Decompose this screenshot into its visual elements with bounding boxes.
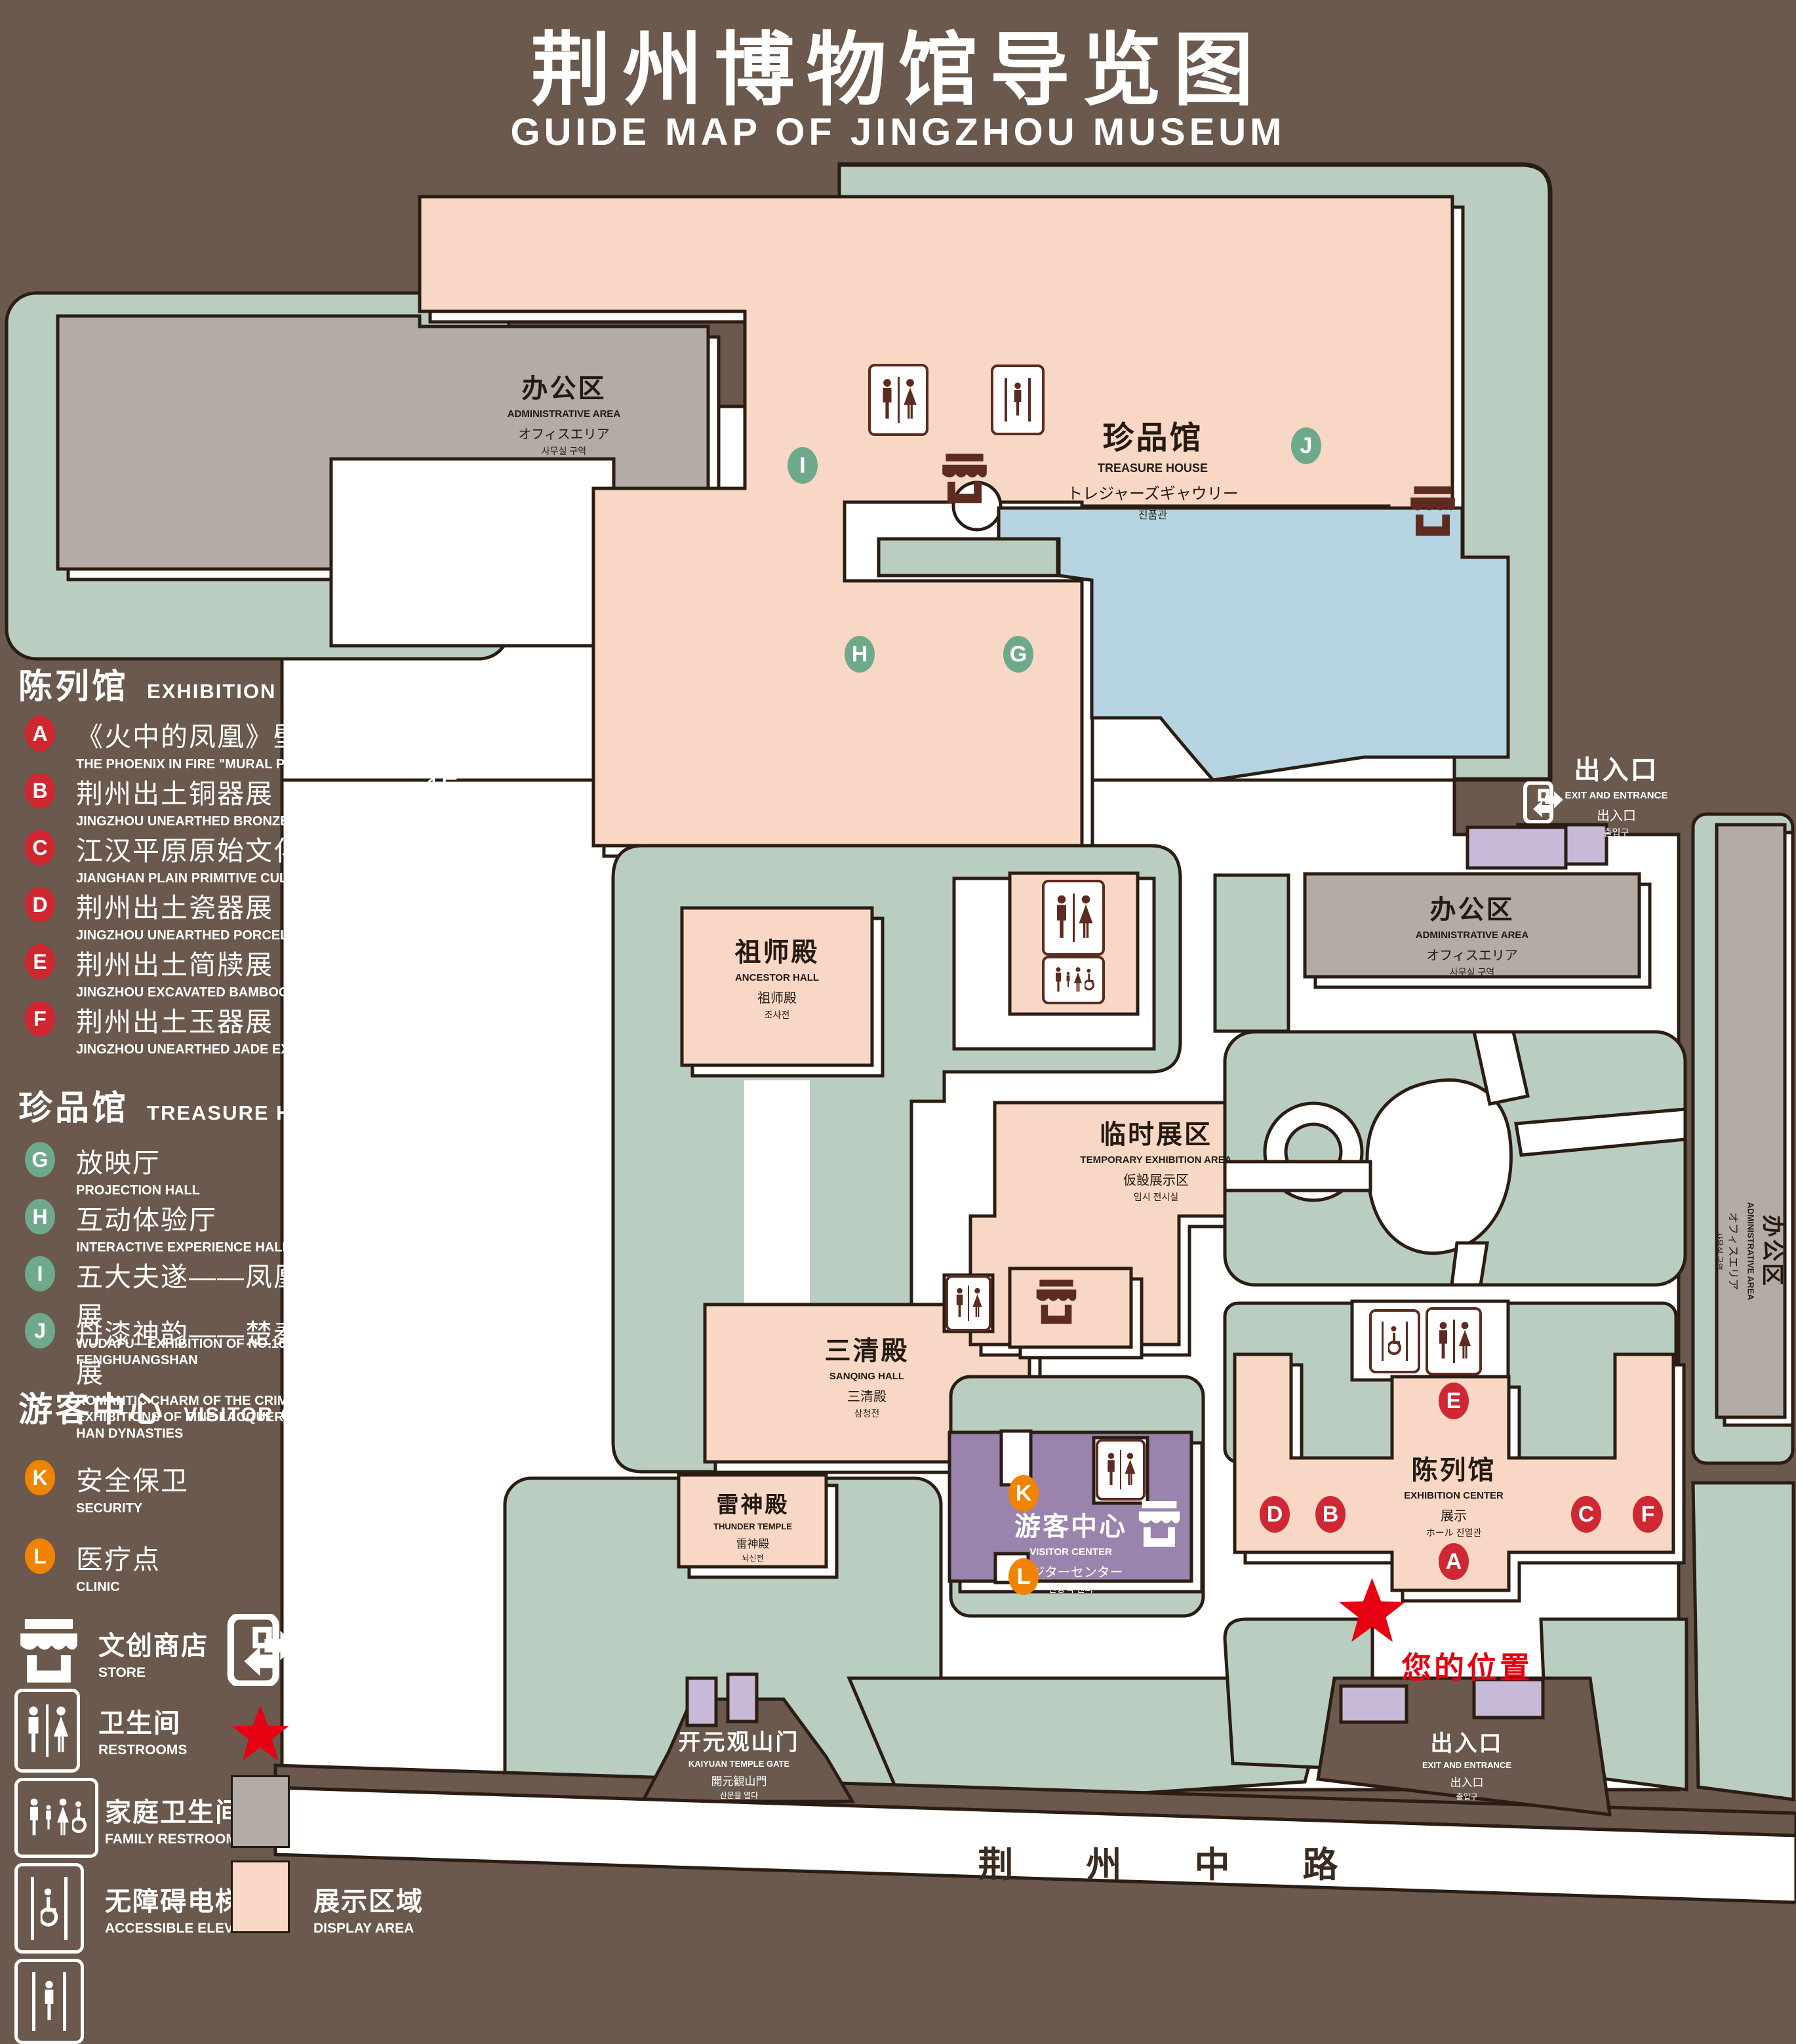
- label-exhibition-center: 陈列馆 EXHIBITION CENTER 展示 ホール 진열관: [1404, 1449, 1504, 1539]
- legend-office-area: 办公区域 OFFICE AREA: [313, 1791, 424, 1847]
- map-marker-H[interactable]: H: [845, 636, 875, 673]
- store-icon: [14, 1619, 83, 1685]
- garden-path-blob: [1367, 1080, 1511, 1253]
- label-kaiyuan-gate: 开元观山门 KAIYUAN TEMPLE GATE 開元観山門 산문을 열다: [679, 1724, 800, 1801]
- courtyard-admin: [331, 459, 614, 646]
- badge-H: H: [25, 1199, 55, 1234]
- restroom-icon: [868, 364, 928, 436]
- label-thunder-temple: 雷神殿 THUNDER TEMPLE 雷神殿 뇌신전: [713, 1487, 792, 1563]
- badge-E: E: [25, 944, 55, 979]
- map-marker-A[interactable]: A: [1439, 1543, 1469, 1580]
- badge-D: D: [25, 887, 55, 922]
- label-sanqing-hall: 三清殿 SANQING HALL 三清殿 삼청전: [825, 1329, 909, 1420]
- your-location-star-icon: [231, 1704, 290, 1763]
- accessible-elevator-icon: [1369, 1309, 1420, 1373]
- floor-C: 1F: [426, 829, 458, 860]
- legend-store: 文创商店 STORE: [98, 1624, 209, 1681]
- label-admin-far-right: 办公区 ADMINISTRATIVE AREA オフィスエリア 사무실 구역: [1714, 1202, 1791, 1301]
- legend-your-location: 您的位置 YOUR LOCATION: [313, 1702, 428, 1758]
- exit-entrance-icon: [1523, 781, 1565, 823]
- floor-A: 1F: [426, 715, 458, 746]
- legend-item-E[interactable]: E 荆州出土简牍展 JINGZHOU EXCAVATED BAMBOO SLIP…: [18, 943, 464, 1001]
- floor-I: 2F: [426, 1255, 458, 1286]
- legend-item-A[interactable]: A 《火中的凤凰》壁画 THE PHOENIX IN FIRE "MURAL P…: [18, 715, 464, 773]
- restroom-icon: [1426, 1307, 1482, 1375]
- label-exit-right: 出入口 EXIT AND ENTRANCE 出入口 출입구: [1565, 749, 1668, 839]
- legend-section-exhibition-center: 陈列馆EXHIBITION CENTER: [18, 659, 374, 708]
- exit-bottom-purple-1: [1341, 1686, 1407, 1722]
- lawn-channel: [879, 539, 1058, 576]
- legend-item-H[interactable]: H 互动体验厅 INTERACTIVE EXPERIENCE HALL 1F: [18, 1198, 464, 1256]
- floor-J: 1-2F: [401, 1312, 458, 1343]
- map-marker-E[interactable]: E: [1439, 1383, 1469, 1419]
- badge-A: A: [25, 716, 55, 751]
- lawn-bottom-far-right: [1693, 1483, 1793, 1799]
- legend-section-treasure-house: 珍品馆TREASURE HOUSE: [18, 1080, 355, 1130]
- garden-path-left: [1225, 1162, 1370, 1190]
- your-location-text: 您的位置: [1401, 1644, 1532, 1687]
- section-title-zh: 陈列馆: [18, 668, 129, 706]
- floor-H: 1F: [426, 1198, 458, 1229]
- elevator-icon: [14, 1959, 84, 2044]
- map-marker-F[interactable]: F: [1633, 1496, 1663, 1533]
- office-area-swatch: [231, 1775, 290, 1848]
- legend-section-visitor-center: 游客中心VISITOR CENTER: [18, 1382, 372, 1431]
- legend-family-restrooms: 家庭卫生间 FAMILY RESTROOMS: [105, 1791, 247, 1847]
- label-treasure-house: 珍品馆 TREASURE HOUSE トレジャーズギャウリー 진품관: [1067, 412, 1239, 522]
- legend-item-C[interactable]: C 江汉平原原始文化展 JIANGHAN PLAIN PRIMITIVE CUL…: [18, 829, 464, 887]
- label-admin-top-left: 办公区 ADMINISTRATIVE AREA オフィスエリア 사무실 구역: [508, 367, 621, 458]
- map-marker-G[interactable]: G: [1003, 636, 1033, 673]
- map-marker-I[interactable]: I: [788, 447, 818, 484]
- legend-exit: 出入口 EXIT AND ENTRANCE: [313, 1624, 458, 1681]
- page-title: 荆州博物馆导览图: [0, 5, 1796, 121]
- legend-item-F[interactable]: F 荆州出土玉器展 JINGZHOU UNEARTHED JADE EXHIBI…: [18, 1000, 464, 1058]
- map-marker-J[interactable]: J: [1291, 427, 1321, 464]
- exit-right-purple: [1467, 827, 1566, 868]
- store-icon: [939, 454, 990, 505]
- restrooms-icon: [14, 1689, 80, 1773]
- legend-item-L[interactable]: L 医疗点 CLINIC 1F: [18, 1537, 464, 1596]
- badge-L: L: [25, 1539, 55, 1574]
- map-marker-B[interactable]: B: [1315, 1496, 1346, 1533]
- store-icon: [1136, 1501, 1183, 1548]
- exit-icon: [226, 1614, 298, 1686]
- floor-K: 1F: [426, 1459, 458, 1490]
- family-restroom-icon: [1042, 956, 1105, 1004]
- floor-E: 2F: [426, 943, 458, 974]
- your-location-star: [1338, 1577, 1407, 1645]
- elevator-icon: [991, 364, 1045, 435]
- restroom-icon: [1096, 1439, 1146, 1501]
- restroom-icon: [1042, 880, 1105, 956]
- legend-item-D[interactable]: D 荆州出土瓷器展 JINGZHOU UNEARTHED PORCELAIN E…: [18, 886, 464, 944]
- store-icon: [1407, 486, 1458, 538]
- map-marker-D[interactable]: D: [1260, 1496, 1290, 1533]
- legend-display-area: 展示区域 DISPLAY AREA: [313, 1880, 424, 1936]
- legend-item-B[interactable]: B 荆州出土铜器展 JINGZHOU UNEARTHED BRONZE WARE…: [18, 772, 464, 830]
- gate-pillar-1: [687, 1678, 716, 1725]
- lawn-right-admin-left: [1215, 875, 1288, 1031]
- label-temporary-exhibition: 临时展区 TEMPORARY EXHIBITION AREA 仮設展示区 임시 …: [1080, 1113, 1231, 1204]
- badge-K: K: [25, 1460, 55, 1495]
- badge-J: J: [25, 1313, 55, 1348]
- badge-I: I: [25, 1256, 55, 1291]
- map-marker-K[interactable]: K: [1008, 1475, 1039, 1512]
- store-icon: [1033, 1280, 1079, 1326]
- restroom-icon: [946, 1275, 991, 1331]
- label-road: 荆 州 中 路: [978, 1836, 1369, 1887]
- family-restrooms-icon: [14, 1778, 98, 1858]
- gate-pillar-2: [728, 1674, 757, 1721]
- badge-F: F: [25, 1001, 55, 1036]
- page-subtitle: GUIDE MAP OF JINGZHOU MUSEUM: [0, 110, 1796, 154]
- legend-restrooms: 卫生间 RESTROOMS: [98, 1702, 187, 1758]
- legend-item-G[interactable]: G 放映厅 PROJECTION HALL 1F: [18, 1141, 464, 1199]
- accessible-elevator-icon: [14, 1863, 84, 1954]
- floor-F: 2F: [426, 1000, 458, 1031]
- floor-D: 2F: [426, 886, 458, 917]
- section-title-en: EXHIBITION CENTER: [147, 680, 374, 703]
- legend-item-K[interactable]: K 安全保卫 SECURITY 1F: [18, 1459, 464, 1517]
- badge-C: C: [25, 830, 55, 865]
- label-admin-right: 办公区 ADMINISTRATIVE AREA オフィスエリア 사무실 구역: [1416, 888, 1529, 979]
- floor-L: 1F: [426, 1537, 458, 1569]
- badge-G: G: [25, 1142, 55, 1177]
- floor-B: 1F: [426, 772, 458, 803]
- label-ancestor-hall: 祖师殿 ANCESTOR HALL 祖师殿 조사전: [735, 931, 820, 1021]
- building-admin-far-right[interactable]: [1717, 825, 1785, 1417]
- display-area-swatch: [231, 1860, 290, 1933]
- floor-G: 1F: [426, 1141, 458, 1172]
- map-marker-L[interactable]: L: [1008, 1558, 1039, 1595]
- map-marker-C[interactable]: C: [1571, 1496, 1601, 1533]
- label-exit-bottom: 出入口 EXIT AND ENTRANCE 出入口 출입구: [1422, 1725, 1511, 1802]
- garden-path-bottom: [1452, 1243, 1487, 1285]
- badge-B: B: [25, 773, 55, 808]
